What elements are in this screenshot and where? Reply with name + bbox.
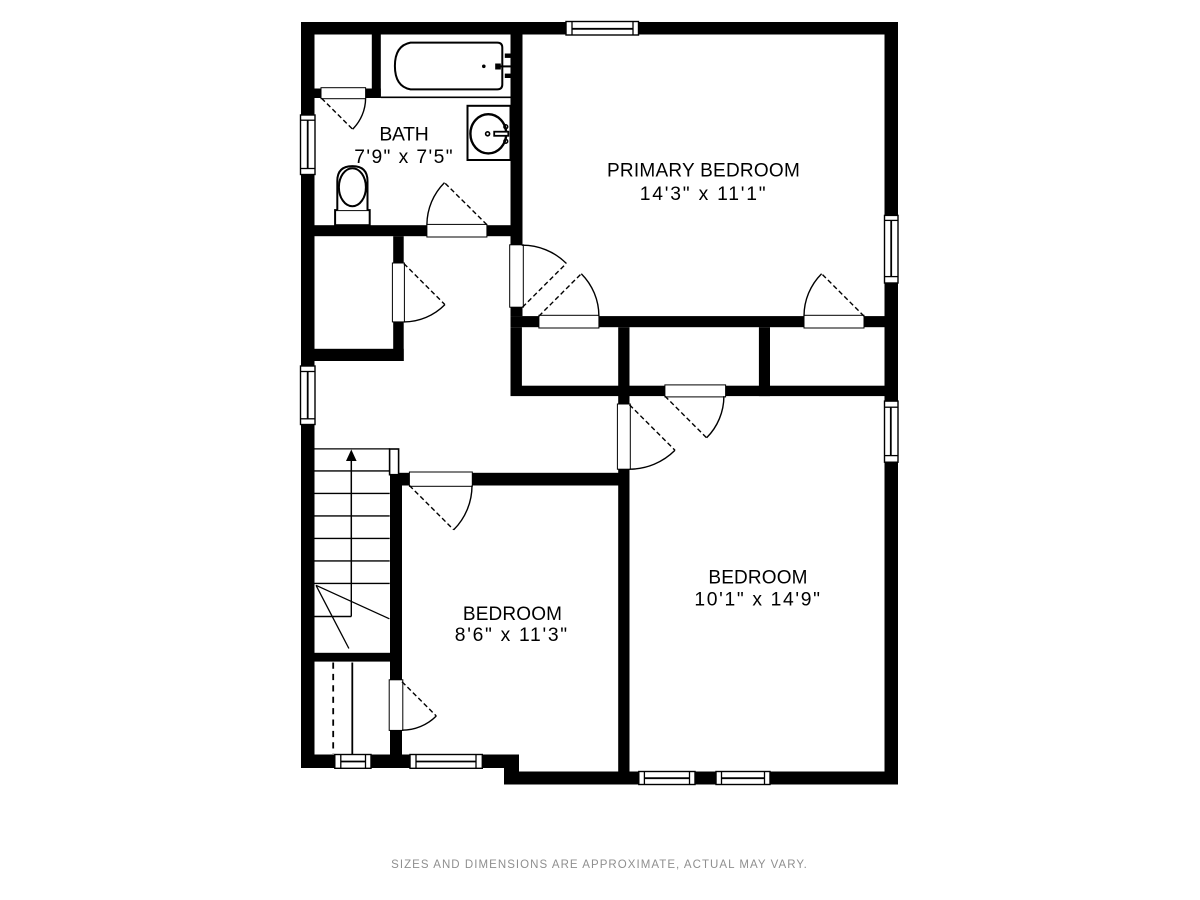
svg-text:10'1" x 14'9": 10'1" x 14'9" bbox=[694, 590, 821, 611]
svg-text:14'3" x 11'1": 14'3" x 11'1" bbox=[640, 184, 768, 205]
svg-text:BEDROOM: BEDROOM bbox=[708, 568, 807, 589]
svg-text:PRIMARY BEDROOM: PRIMARY BEDROOM bbox=[607, 161, 800, 182]
svg-text:8'6" x 11'3": 8'6" x 11'3" bbox=[455, 625, 569, 646]
svg-text:7'9" x 7'5": 7'9" x 7'5" bbox=[354, 147, 454, 168]
svg-text:SIZES AND DIMENSIONS ARE APPRO: SIZES AND DIMENSIONS ARE APPROXIMATE, AC… bbox=[391, 859, 808, 871]
svg-text:BATH: BATH bbox=[379, 123, 428, 145]
svg-text:BEDROOM: BEDROOM bbox=[463, 604, 562, 625]
